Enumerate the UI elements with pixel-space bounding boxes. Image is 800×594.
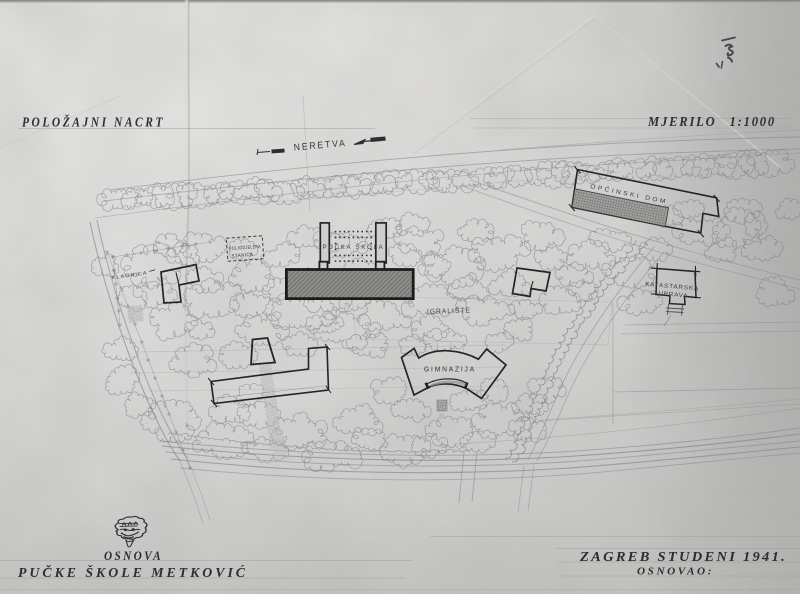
svg-text:POLOŽAJNI NACRT: POLOŽAJNI NACRT [22,115,165,130]
svg-text:IGRALIŠTE: IGRALIŠTE [427,305,471,316]
svg-text:OSNOVA: OSNOVA [104,549,163,563]
svg-text:GIMNAZIJA: GIMNAZIJA [424,365,476,374]
svg-text:PUČKA ŠKOLA: PUČKA ŠKOLA [323,242,385,251]
svg-text:MJERILO 1:1000: MJERILO 1:1000 [647,115,776,130]
svg-text:PUČKE ŠKOLE METKOVIĆ: PUČKE ŠKOLE METKOVIĆ [18,564,248,581]
svg-text:OSNOVAO:: OSNOVAO: [637,567,714,578]
svg-text:ZAGREB STUDENI 1941.: ZAGREB STUDENI 1941. [579,550,787,565]
